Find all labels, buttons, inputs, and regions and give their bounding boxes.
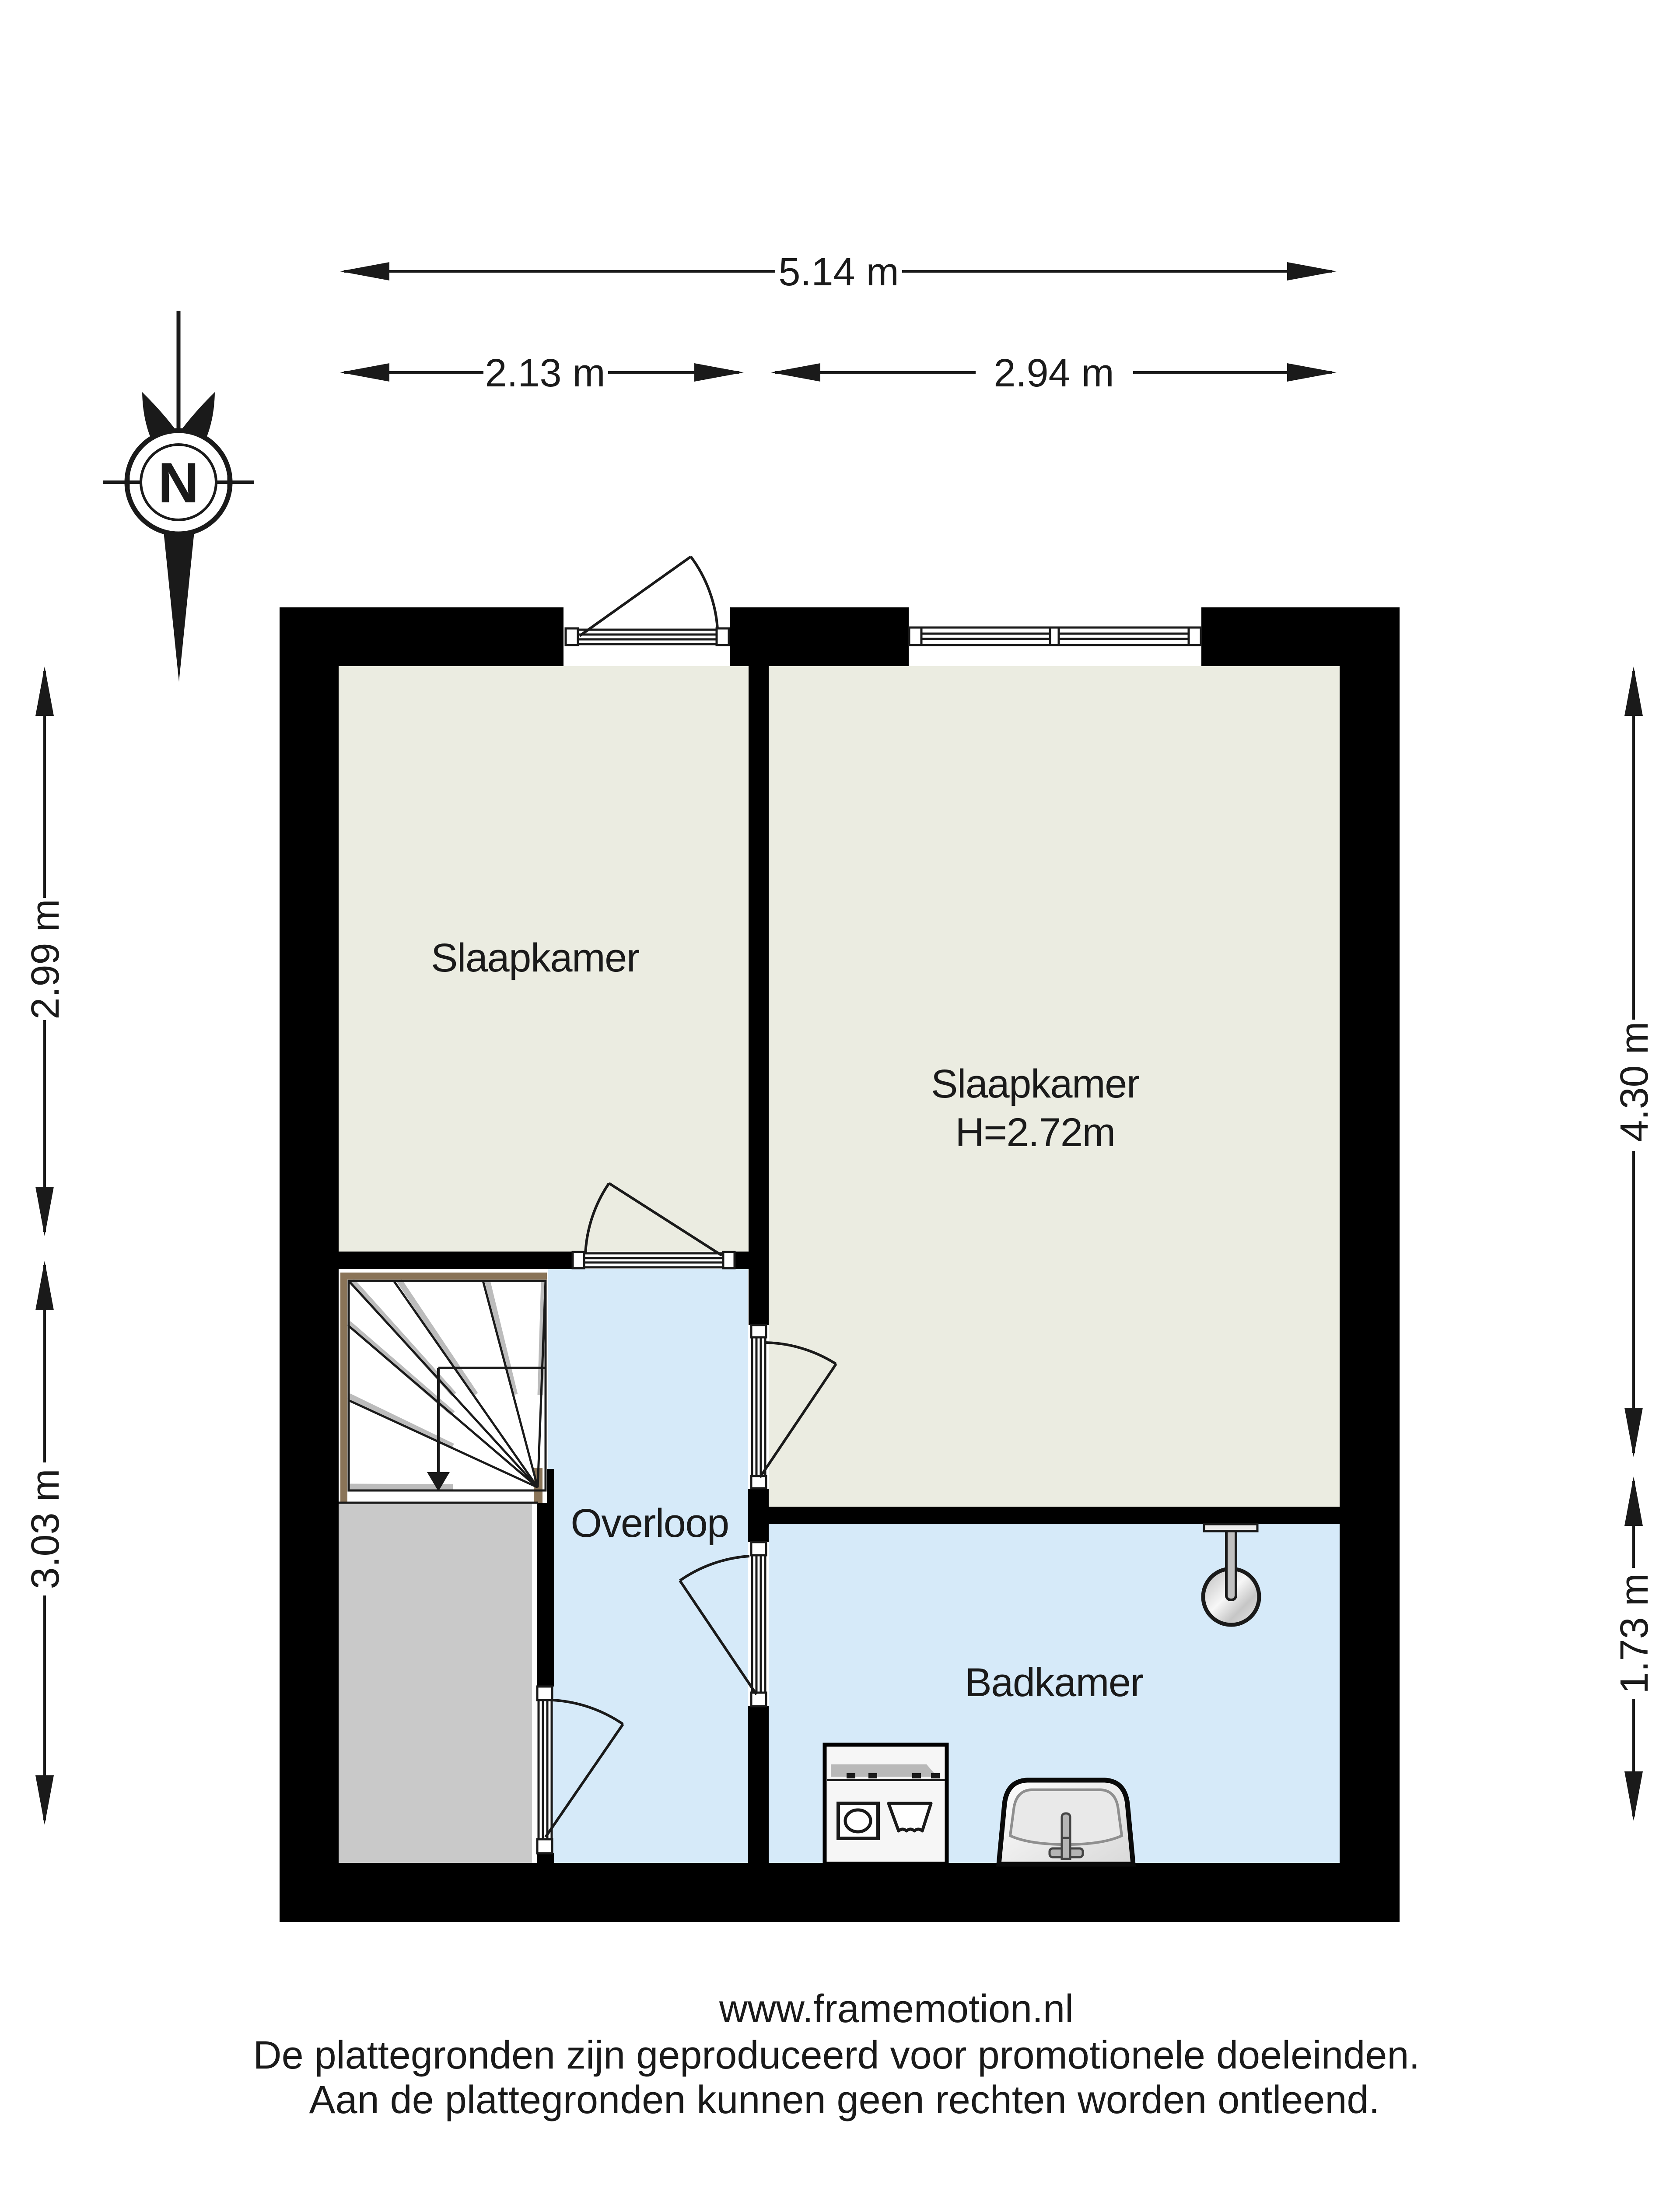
svg-text:2.13 m: 2.13 m [485, 351, 605, 395]
svg-text:1.73 m: 1.73 m [1613, 1573, 1656, 1694]
svg-text:H=2.72m: H=2.72m [955, 1110, 1115, 1155]
svg-text:www.framemotion.nl: www.framemotion.nl [719, 1987, 1074, 2031]
svg-text:Overloop: Overloop [570, 1501, 728, 1546]
svg-text:2.99 m: 2.99 m [24, 899, 67, 1019]
svg-text:Slaapkamer: Slaapkamer [931, 1062, 1140, 1106]
svg-text:2.94 m: 2.94 m [994, 351, 1114, 395]
svg-text:Badkamer: Badkamer [965, 1660, 1143, 1705]
svg-text:Aan de plattegronden kunnen ge: Aan de plattegronden kunnen geen rechten… [309, 2078, 1380, 2122]
svg-text:N: N [158, 451, 199, 515]
svg-text:3.03 m: 3.03 m [24, 1469, 67, 1589]
svg-text:De plattegronden zijn geproduc: De plattegronden zijn geproduceerd voor … [253, 2034, 1420, 2077]
svg-text:5.14 m: 5.14 m [778, 250, 899, 294]
svg-text:4.30 m: 4.30 m [1613, 1021, 1656, 1142]
svg-text:Slaapkamer: Slaapkamer [431, 936, 640, 980]
